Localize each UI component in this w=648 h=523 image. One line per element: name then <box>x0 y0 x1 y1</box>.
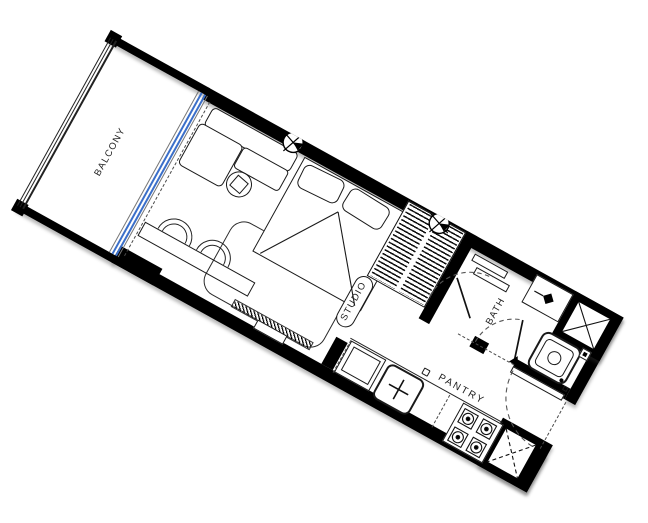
floor-plan: BALCONY STUDIO BATH PANTRY <box>15 34 624 493</box>
entry-threshold-dash <box>540 402 567 449</box>
bath-label: BATH <box>478 286 514 336</box>
bulkhead-dash <box>458 333 514 365</box>
railing-line <box>23 41 117 210</box>
wall-top-balcony <box>108 34 210 95</box>
counter-divider-dash <box>431 395 450 428</box>
wall-bottom-balcony <box>15 202 117 263</box>
floor-plan-page: BALCONY STUDIO BATH PANTRY <box>0 0 648 523</box>
balcony-label: BALCONY <box>87 118 133 186</box>
